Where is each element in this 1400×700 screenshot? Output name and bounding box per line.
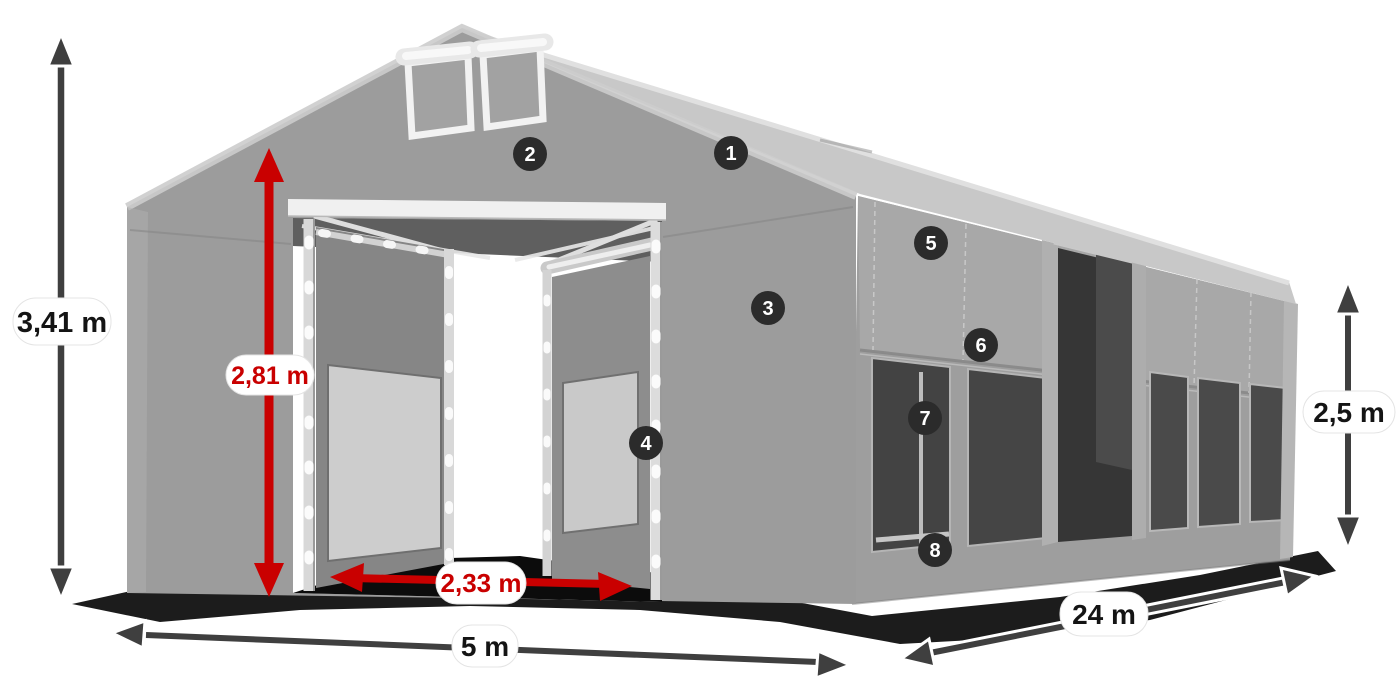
arrowhead-up <box>1335 281 1361 314</box>
side-wall-post <box>1042 240 1058 546</box>
side-height-value: 2,5 m <box>1313 397 1385 428</box>
badge-number: 4 <box>640 433 652 455</box>
entrance-height-label: 2,81 m <box>226 355 314 395</box>
badge-number: 1 <box>725 143 736 165</box>
callout-badge-7: 7 <box>908 401 942 435</box>
front-width-value: 5 m <box>461 631 509 662</box>
total-height-value: 3,41 m <box>17 307 107 339</box>
entrance-width-label: 2,33 m <box>436 562 526 604</box>
arrowhead-down <box>48 567 74 599</box>
front-width-label: 5 m <box>452 625 518 667</box>
callout-badge-6: 6 <box>964 328 998 362</box>
roof-vent-right <box>479 42 545 127</box>
side-window-far-1 <box>1150 372 1188 531</box>
total-height-label: 3,41 m <box>13 298 111 345</box>
left-door-window <box>328 365 441 561</box>
side-window-far-3 <box>1250 384 1286 522</box>
callout-badge-1: 1 <box>714 136 748 170</box>
arrowhead-right <box>816 651 850 678</box>
tent-illustration-svg: 3,41 m 2,81 m 2,33 m 5 m 24 m <box>0 0 1400 700</box>
callout-badge-3: 3 <box>751 291 785 325</box>
badge-number: 3 <box>762 298 773 320</box>
badge-number: 2 <box>524 144 535 166</box>
roof-vent-left <box>404 50 471 136</box>
badge-number: 6 <box>975 335 986 357</box>
right-door-window <box>563 372 638 533</box>
gable-corner-strip <box>127 207 148 593</box>
callout-badge-4: 4 <box>629 426 663 460</box>
side-length-value: 24 m <box>1072 599 1136 630</box>
vent-mesh <box>483 48 543 127</box>
arrowhead-left <box>112 621 145 648</box>
badge-number: 5 <box>925 233 936 255</box>
tent-dimension-diagram: 3,41 m 2,81 m 2,33 m 5 m 24 m <box>0 0 1400 700</box>
side-wall-post <box>1132 262 1146 540</box>
side-length-label: 24 m <box>1060 592 1148 636</box>
badge-number: 7 <box>919 408 930 430</box>
sliding-door-leaf <box>1096 254 1132 470</box>
front-gable <box>127 28 856 604</box>
callout-badge-2: 2 <box>513 137 547 171</box>
arrowhead-down <box>1335 516 1361 549</box>
callout-badge-8: 8 <box>918 533 952 567</box>
side-window-far-2 <box>1198 378 1240 527</box>
side-height-label: 2,5 m <box>1303 391 1395 433</box>
callout-badge-5: 5 <box>914 226 948 260</box>
badge-number: 8 <box>929 540 940 562</box>
side-wall <box>852 196 1298 604</box>
side-window-near-1 <box>872 358 950 552</box>
left-door-panel <box>316 227 449 588</box>
arrowhead-up <box>48 34 74 66</box>
side-window-near-2 <box>968 369 1046 546</box>
entrance-height-value: 2,81 m <box>231 362 309 390</box>
right-door-panel <box>547 244 652 589</box>
entrance-opening <box>288 199 666 602</box>
entrance-width-value: 2,33 m <box>441 568 522 598</box>
vent-mesh <box>408 56 471 136</box>
